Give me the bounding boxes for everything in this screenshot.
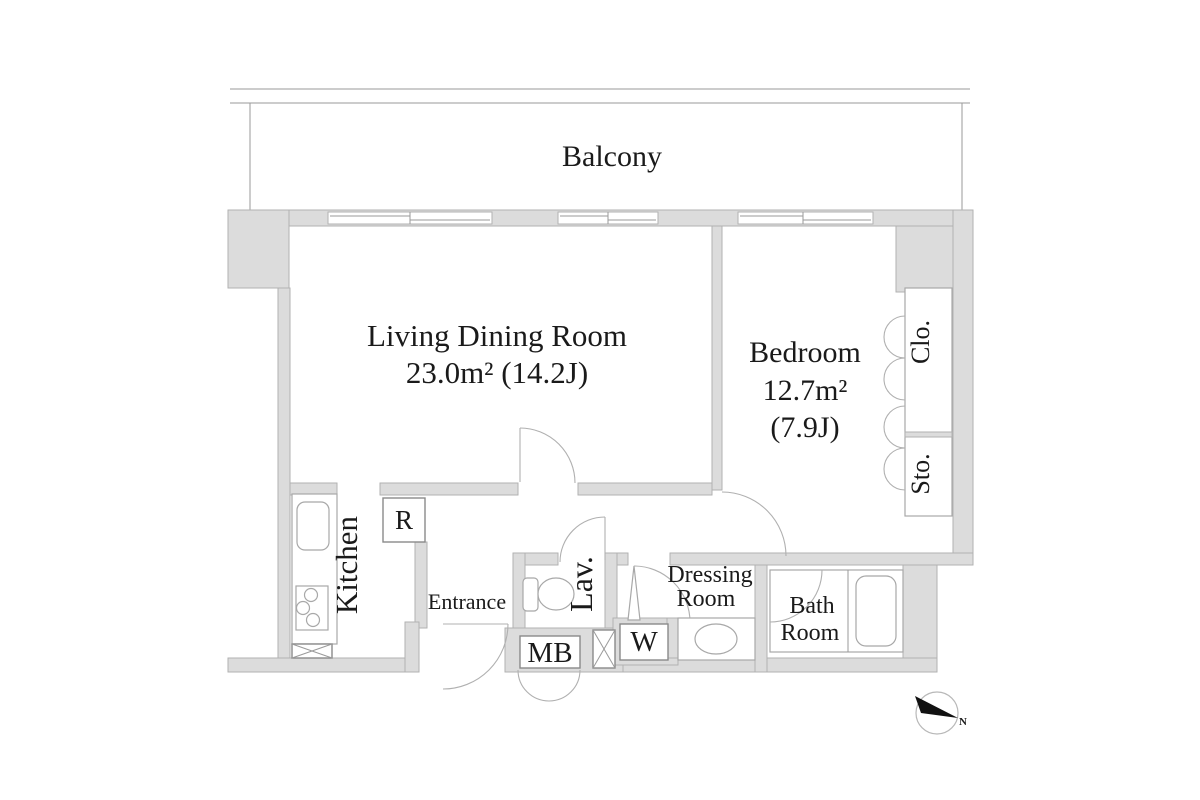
toilet-tank [523,578,538,611]
closet-label: Clo. [906,320,935,364]
storage-label: Sto. [906,453,935,494]
dressing-label-line1: Dressing [667,562,752,588]
closet-storage-divider [905,432,952,437]
storage-bifold-door [884,406,905,448]
wall-living-south-b [380,483,518,495]
wall-kitchen-east [415,542,427,628]
bath-label-line2: Room [781,620,840,646]
wash-basin [695,624,737,654]
entrance-door-arc [443,624,508,689]
floor-plan-page: Balcony [0,0,1200,800]
entrance-label: Entrance [428,589,506,614]
dressing-label-line2: Room [677,586,736,612]
closet-storage: Clo. Sto. [884,288,952,516]
compass-north-label: N [959,716,967,728]
wall-bottom-left [228,658,412,672]
stove-burner [307,614,320,627]
lavatory-label: Lav. [563,556,599,612]
wall-right-lower [903,560,937,672]
bathtub [856,576,896,646]
closet-bifold-door [884,316,905,358]
room-bath: Bath Room [770,570,903,652]
wall-bath-west [755,565,767,672]
room-bedroom: Bedroom 12.7m² (7.9J) [722,336,861,556]
meter-box-door-arc [518,670,549,701]
compass-icon: N [915,692,967,734]
wall-living-south-c [578,483,712,495]
meter-box: MB [518,636,580,701]
floor-plan-drawing: Balcony [0,0,1200,800]
lavatory-door-arc [560,517,605,562]
kitchen-sink [297,502,329,550]
refrigerator-label: R [395,505,413,535]
kitchen-label: Kitchen [329,515,364,614]
wall-right-upper [953,210,973,565]
bedroom-name: Bedroom [749,336,861,369]
living-dining-area: 23.0m² (14.2J) [406,355,588,390]
bedroom-area-m2: 12.7m² [763,374,848,407]
stove-burner [305,589,318,602]
room-living-dining: Living Dining Room 23.0m² (14.2J) [367,318,627,483]
wall-living-south-a [290,483,337,495]
living-door-arc [520,428,575,483]
wall-left [278,288,290,672]
closet-bifold-door [884,358,905,400]
wall-bedroom-divider [712,226,722,490]
stove-burner [297,602,310,615]
meter-box-label: MB [527,637,572,669]
room-entrance: Entrance [428,589,508,689]
windows [328,212,873,224]
storage-bifold-door [884,448,905,490]
balcony: Balcony [230,89,970,210]
meter-box-door-arc [549,670,580,701]
bedroom-door-arc [722,492,786,556]
bedroom-area-j: (7.9J) [770,411,839,444]
wall-entrance-step [405,622,419,672]
window-bedroom [738,212,873,224]
dressing-door-leaf [628,566,640,620]
living-dining-name: Living Dining Room [367,318,627,353]
bath-label-line1: Bath [789,593,834,619]
wall-pillar-top-left [228,210,289,288]
washer-label: W [630,626,658,658]
balcony-label: Balcony [562,140,662,173]
